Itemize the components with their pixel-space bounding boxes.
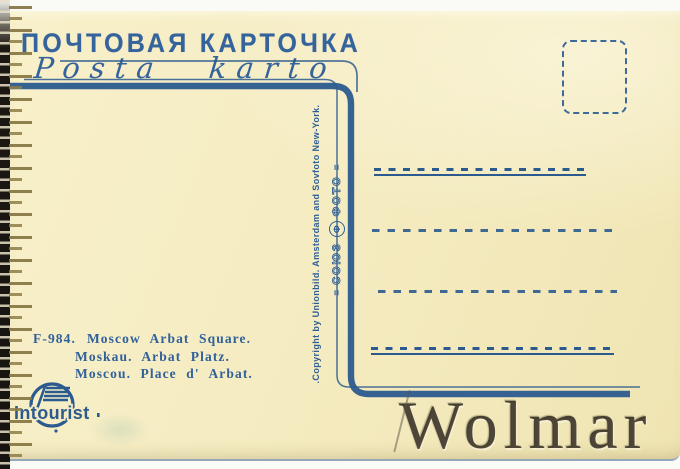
caption-row-en: F-984.Moscow Arbat Square. <box>33 330 253 348</box>
caption-english: Moscow Arbat Square. <box>87 331 251 346</box>
ink-smudge <box>90 413 150 447</box>
soyuzfoto-logo-icon: Φ <box>329 221 345 237</box>
flourish-mark: = <box>332 164 343 170</box>
agency-word-foto: ФОТО <box>331 175 343 216</box>
postcard-scan: ПОЧТОВАЯ КАРТОЧКА Posta karto .Copyright… <box>0 0 680 469</box>
wolmar-watermark: Wolmar <box>399 391 652 459</box>
address-line <box>371 347 614 355</box>
address-line <box>374 168 586 176</box>
stamp-box <box>562 40 627 114</box>
caption-block: F-984.Moscow Arbat Square. Moskau. Arbat… <box>33 330 253 383</box>
perforation-ticks <box>9 17 22 463</box>
address-line <box>372 229 620 232</box>
address-line <box>378 290 617 293</box>
copyright-credit: .Copyright by Unionbild. Amsterdam and S… <box>311 94 326 394</box>
caption-code: F-984. <box>33 331 76 346</box>
soyuzfoto-mark: = СОЮЗ Φ ФОТО = <box>328 163 346 297</box>
flourish-mark: = <box>332 290 343 296</box>
logo-dot-icon <box>54 429 57 432</box>
agency-word-soyuz: СОЮЗ <box>331 242 343 284</box>
caption-german: Moskau. Arbat Platz. <box>75 348 253 366</box>
postcard-title-esperanto: Posta karto <box>32 51 338 85</box>
